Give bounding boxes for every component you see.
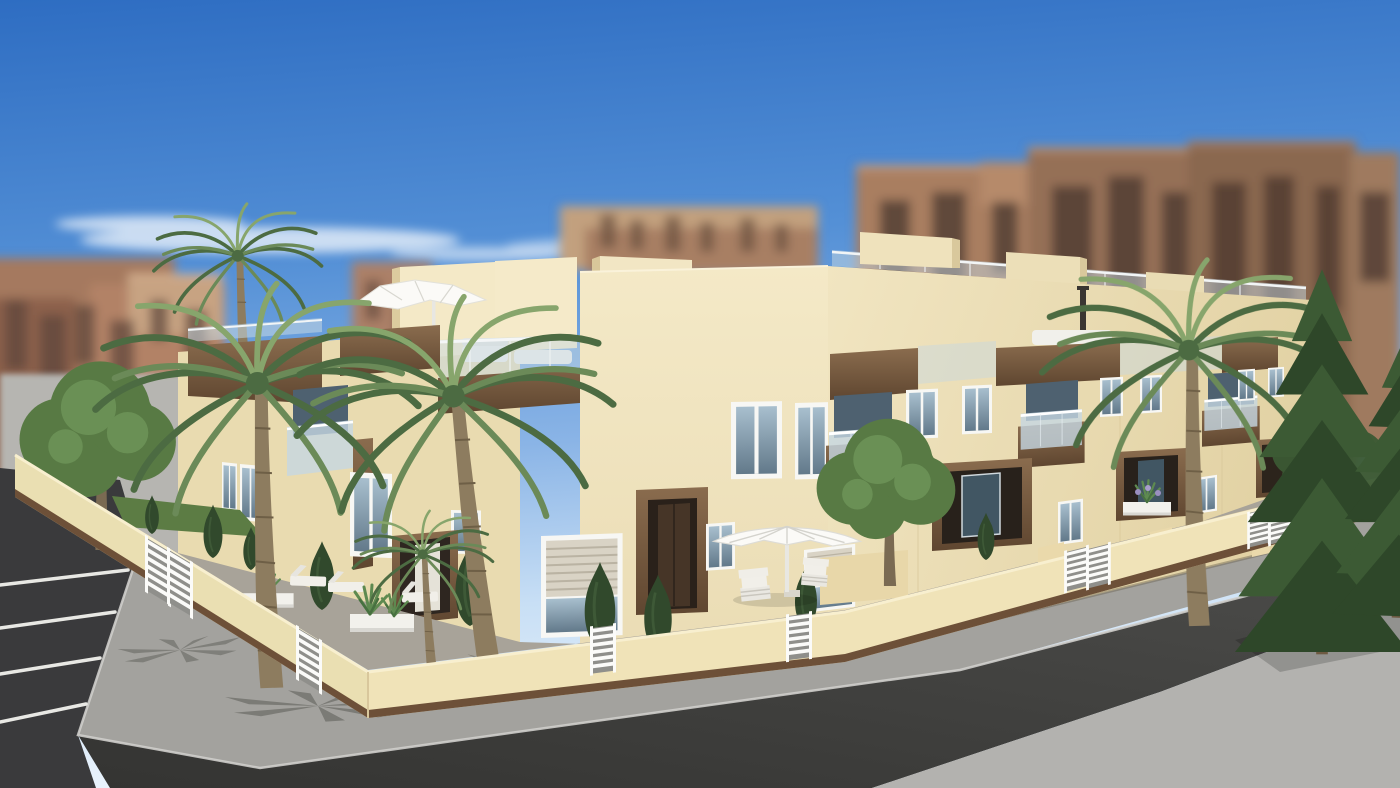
terrace-glass-railing — [918, 341, 996, 384]
roof-bulkhead-side — [952, 238, 960, 268]
cloud — [55, 216, 245, 232]
window — [731, 401, 782, 479]
render-image: { "scene": { "type": "3d-architectural-r… — [0, 0, 1400, 788]
window — [222, 462, 237, 512]
louvre-gate — [590, 623, 616, 676]
louvre-gate — [786, 611, 812, 662]
window — [962, 385, 992, 435]
window — [706, 522, 735, 571]
roof-bulkhead — [860, 232, 952, 268]
armchair — [738, 567, 771, 601]
architectural-render — [0, 0, 1400, 788]
armchair — [801, 557, 829, 587]
entrance-portal — [636, 487, 708, 615]
louvre-gate — [1086, 542, 1111, 591]
window — [1058, 499, 1083, 545]
render-canvas — [0, 0, 1400, 788]
louvre-gate — [1064, 545, 1089, 594]
wood-fascia — [830, 348, 918, 400]
planter-box — [350, 614, 414, 632]
planter-box — [1123, 502, 1171, 516]
roof-bulkhead — [1006, 252, 1080, 284]
